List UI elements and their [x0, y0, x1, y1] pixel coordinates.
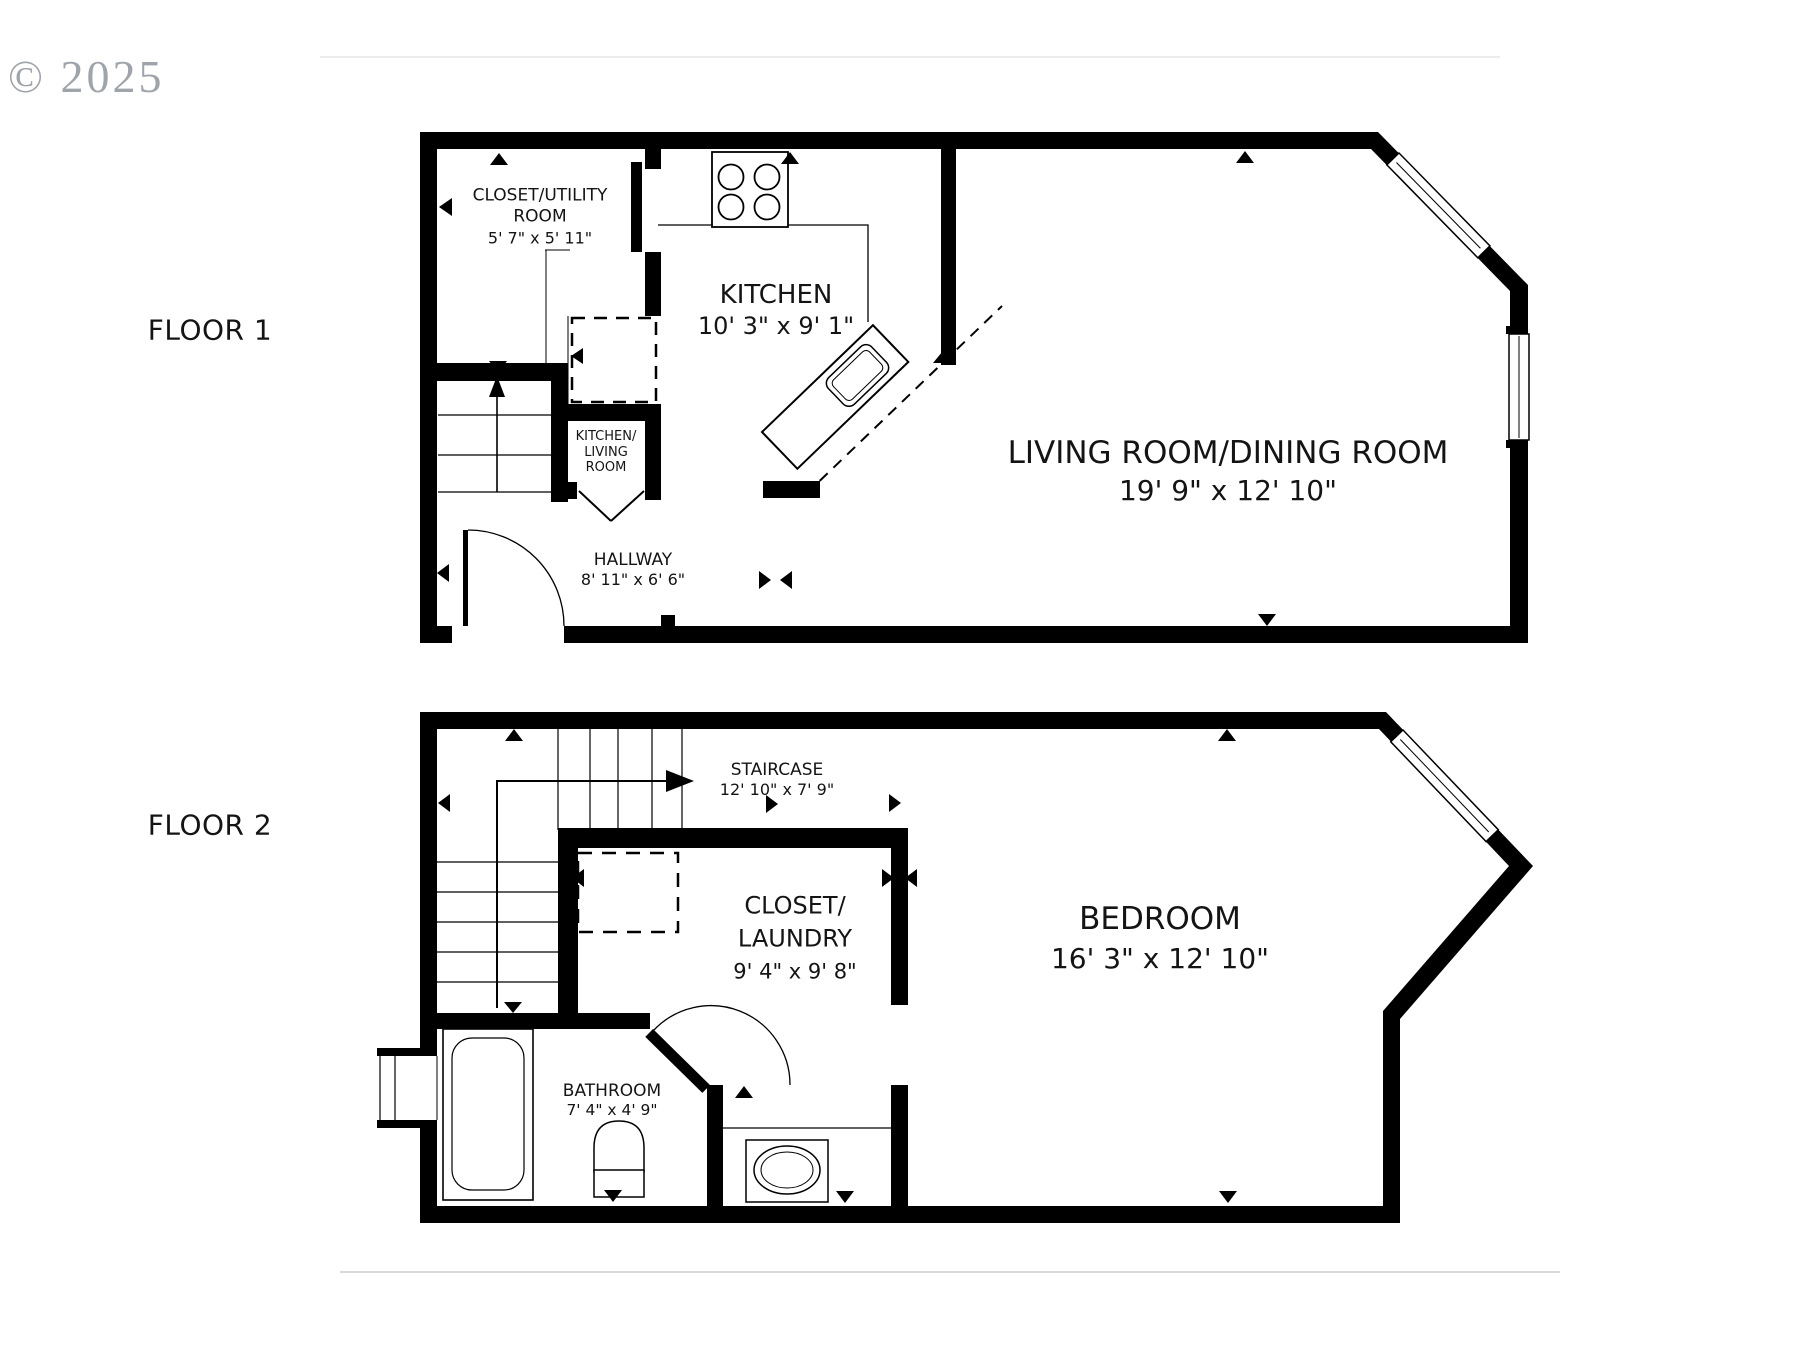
floor2-outer-walls — [420, 712, 1533, 1223]
floor2-label: FLOOR 2 — [148, 809, 272, 842]
room-name: BEDROOM — [1051, 900, 1269, 939]
bathroom-door-icon — [645, 1006, 790, 1093]
room-dims: 9' 4" x 9' 8" — [733, 956, 856, 989]
stairs-direction-arrow — [666, 770, 694, 792]
room-label-kitchen-living-pass: KITCHEN/ LIVING ROOM — [576, 429, 637, 476]
room-dims: 5' 7" x 5' 11" — [473, 228, 608, 249]
room-label-bathroom: BATHROOM 7' 4" x 4' 9" — [563, 1082, 661, 1120]
room-name: CLOSET/ — [733, 890, 856, 923]
double-door-icon — [579, 491, 644, 521]
room-dims: 12' 10" x 7' 9" — [720, 780, 834, 800]
window-icon — [377, 1048, 437, 1128]
room-label-kitchen: KITCHEN 10' 3" x 9' 1" — [698, 280, 854, 342]
room-label-living-dining: LIVING ROOM/DINING ROOM 19' 9" x 12' 10" — [1008, 434, 1449, 510]
room-dims: 16' 3" x 12' 10" — [1051, 939, 1269, 978]
room-name: STAIRCASE — [720, 760, 834, 780]
kitchen-island — [762, 325, 908, 469]
appliance-dashed-box — [578, 853, 678, 932]
bathtub-icon — [443, 1029, 533, 1200]
room-name: ROOM — [473, 207, 608, 228]
room-label-hallway: HALLWAY 8' 11" x 6' 6" — [581, 550, 685, 590]
room-label-bedroom: BEDROOM 16' 3" x 12' 10" — [1051, 900, 1269, 978]
entry-door-icon — [452, 530, 564, 643]
room-name: LIVING ROOM/DINING ROOM — [1008, 434, 1449, 472]
room-label-staircase: STAIRCASE 12' 10" x 7' 9" — [720, 760, 834, 800]
room-name: HALLWAY — [581, 550, 685, 570]
room-label-closet-utility: CLOSET/UTILITY ROOM 5' 7" x 5' 11" — [473, 186, 608, 249]
window-icon — [1506, 326, 1529, 448]
floorplan-graphics — [0, 0, 1800, 1350]
room-dims: 10' 3" x 9' 1" — [698, 311, 854, 342]
room-dims: 7' 4" x 4' 9" — [563, 1101, 661, 1120]
room-dims: 19' 9" x 12' 10" — [1008, 472, 1449, 510]
floor2-plan — [377, 712, 1533, 1223]
window-icon — [1387, 153, 1490, 258]
room-name: LAUNDRY — [733, 923, 856, 956]
room-name: KITCHEN — [698, 280, 854, 311]
room-name: BATHROOM — [563, 1082, 661, 1101]
room-dims: 8' 11" x 6' 6" — [581, 570, 685, 590]
floorplan-page: © 2025 — [0, 0, 1800, 1350]
stove-icon — [712, 152, 788, 227]
room-name: CLOSET/UTILITY — [473, 186, 608, 207]
toilet-icon — [594, 1121, 644, 1197]
window-icon — [1391, 730, 1499, 842]
appliance-dashed-box — [572, 318, 656, 402]
staircase-floor1 — [438, 376, 551, 492]
room-label-closet-laundry: CLOSET/ LAUNDRY 9' 4" x 9' 8" — [733, 890, 856, 989]
room-name: LIVING — [576, 444, 637, 460]
room-name: KITCHEN/ — [576, 429, 637, 445]
sink-icon — [746, 1140, 828, 1202]
floor1-label: FLOOR 1 — [148, 314, 272, 347]
door-leaf-icon — [631, 162, 642, 252]
room-name: ROOM — [576, 460, 637, 476]
